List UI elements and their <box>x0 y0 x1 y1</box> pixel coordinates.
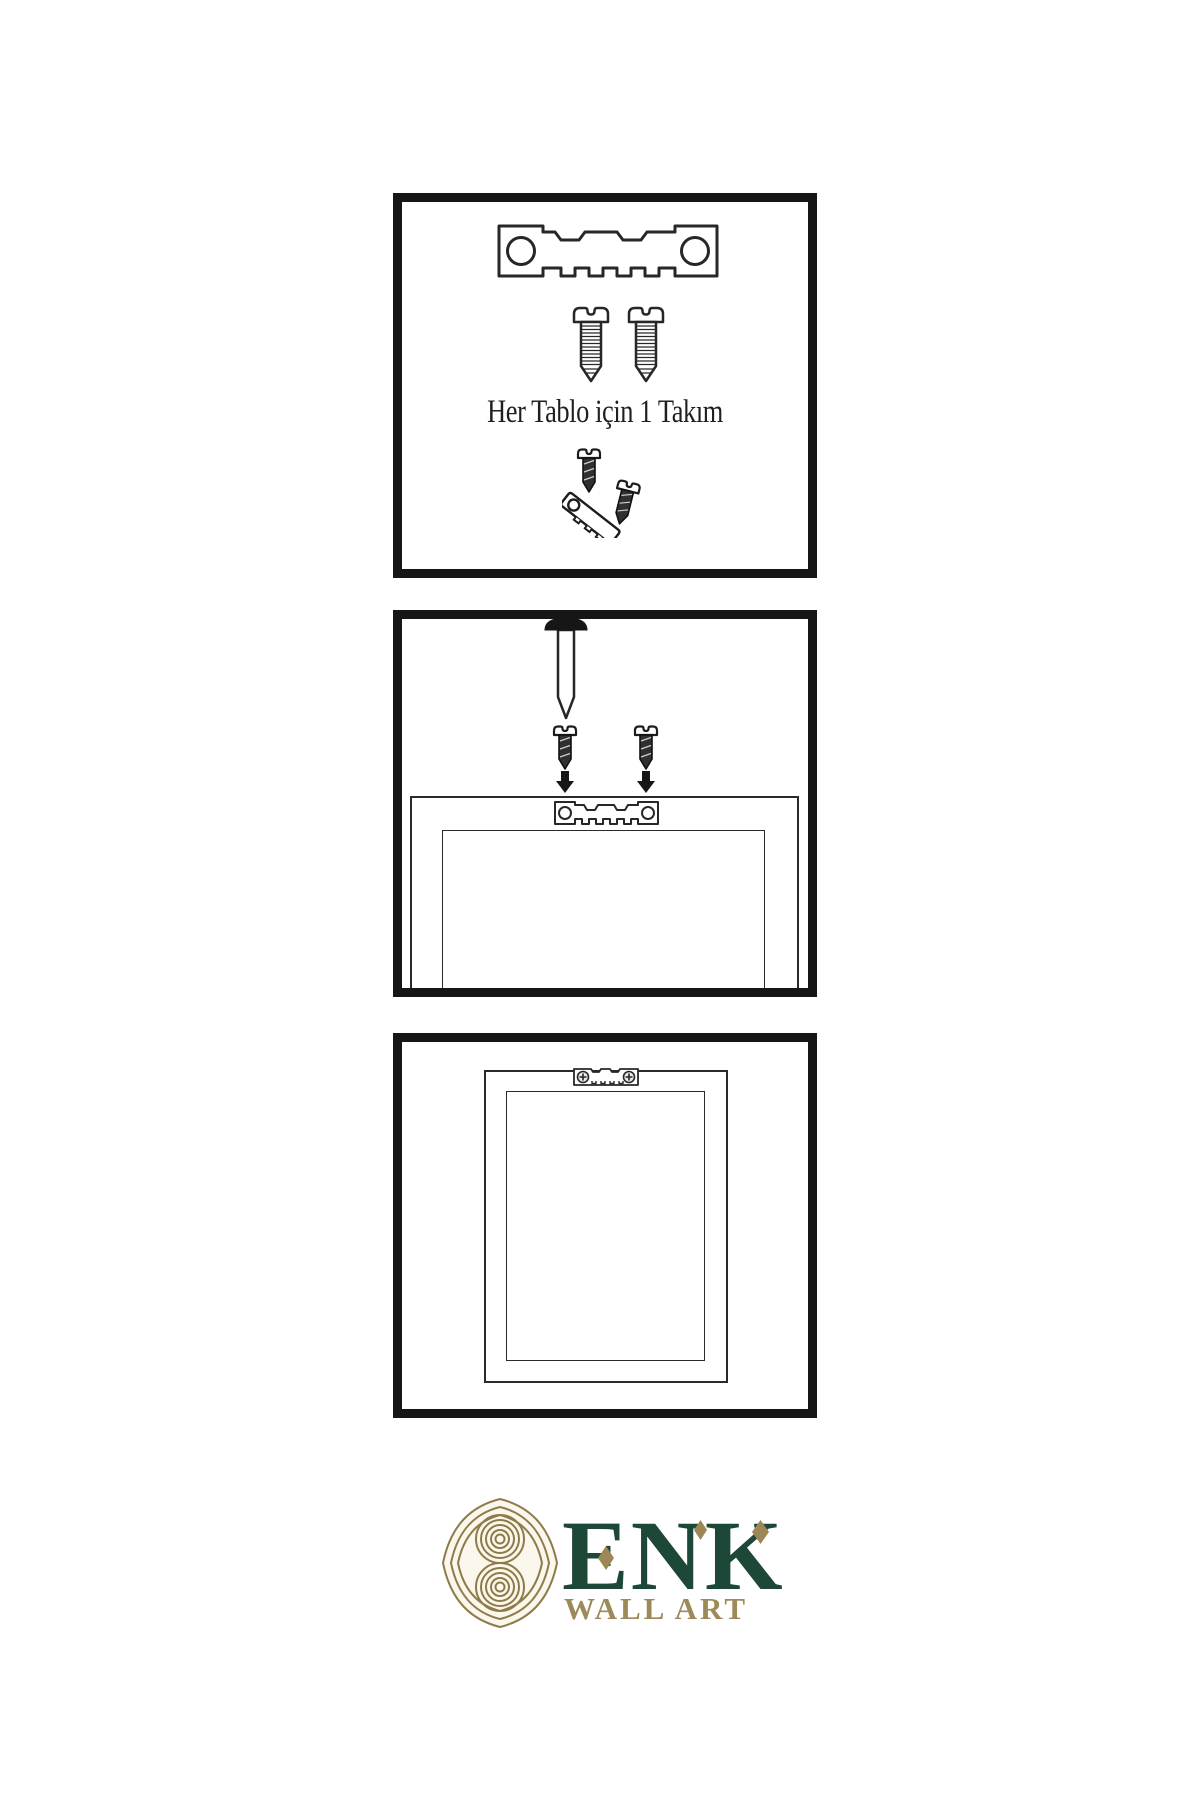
dark-screw-icon <box>633 723 659 771</box>
screw-into-hanger-icon <box>562 446 658 538</box>
panel-hung <box>393 1033 817 1418</box>
frame-inner <box>506 1091 705 1361</box>
arrow-down-icon <box>637 771 655 793</box>
sawtooth-hanger-installed-icon <box>573 1067 639 1087</box>
hanger-hole-left <box>508 238 535 265</box>
hanger-hole-right <box>682 238 709 265</box>
screw-icon <box>627 305 665 385</box>
tilted-hanger-icon <box>562 492 623 538</box>
wall-nail-icon <box>544 619 588 721</box>
logo-subtitle: WALL ART <box>564 1593 748 1624</box>
hanger-hole-left <box>559 807 571 819</box>
panel-mounting-content <box>402 619 808 988</box>
panel-kit-content: Her Tablo için 1 Takım <box>402 202 808 569</box>
dark-screw-icon <box>552 723 578 771</box>
dark-screw-icon <box>609 480 641 527</box>
sawtooth-hanger-small-icon <box>554 801 659 825</box>
arrow-down-icon <box>556 771 574 793</box>
phillips-screw-head-icon <box>578 1072 589 1083</box>
kit-caption: Her Tablo için 1 Takım <box>443 394 768 431</box>
panel-mounting <box>393 610 817 997</box>
screw-icon <box>572 305 610 385</box>
sawtooth-hanger-icon <box>497 224 719 278</box>
frame-back-inner <box>442 830 765 988</box>
hanger-hole-right <box>642 807 654 819</box>
enk-knot-logo-icon <box>438 1496 562 1630</box>
dark-screw-icon <box>578 450 600 493</box>
panel-kit: Her Tablo için 1 Takım <box>393 193 817 578</box>
phillips-screw-head-icon <box>624 1072 635 1083</box>
instruction-sheet: Her Tablo için 1 Takım <box>0 0 1200 1800</box>
panel-hung-content <box>402 1042 808 1409</box>
